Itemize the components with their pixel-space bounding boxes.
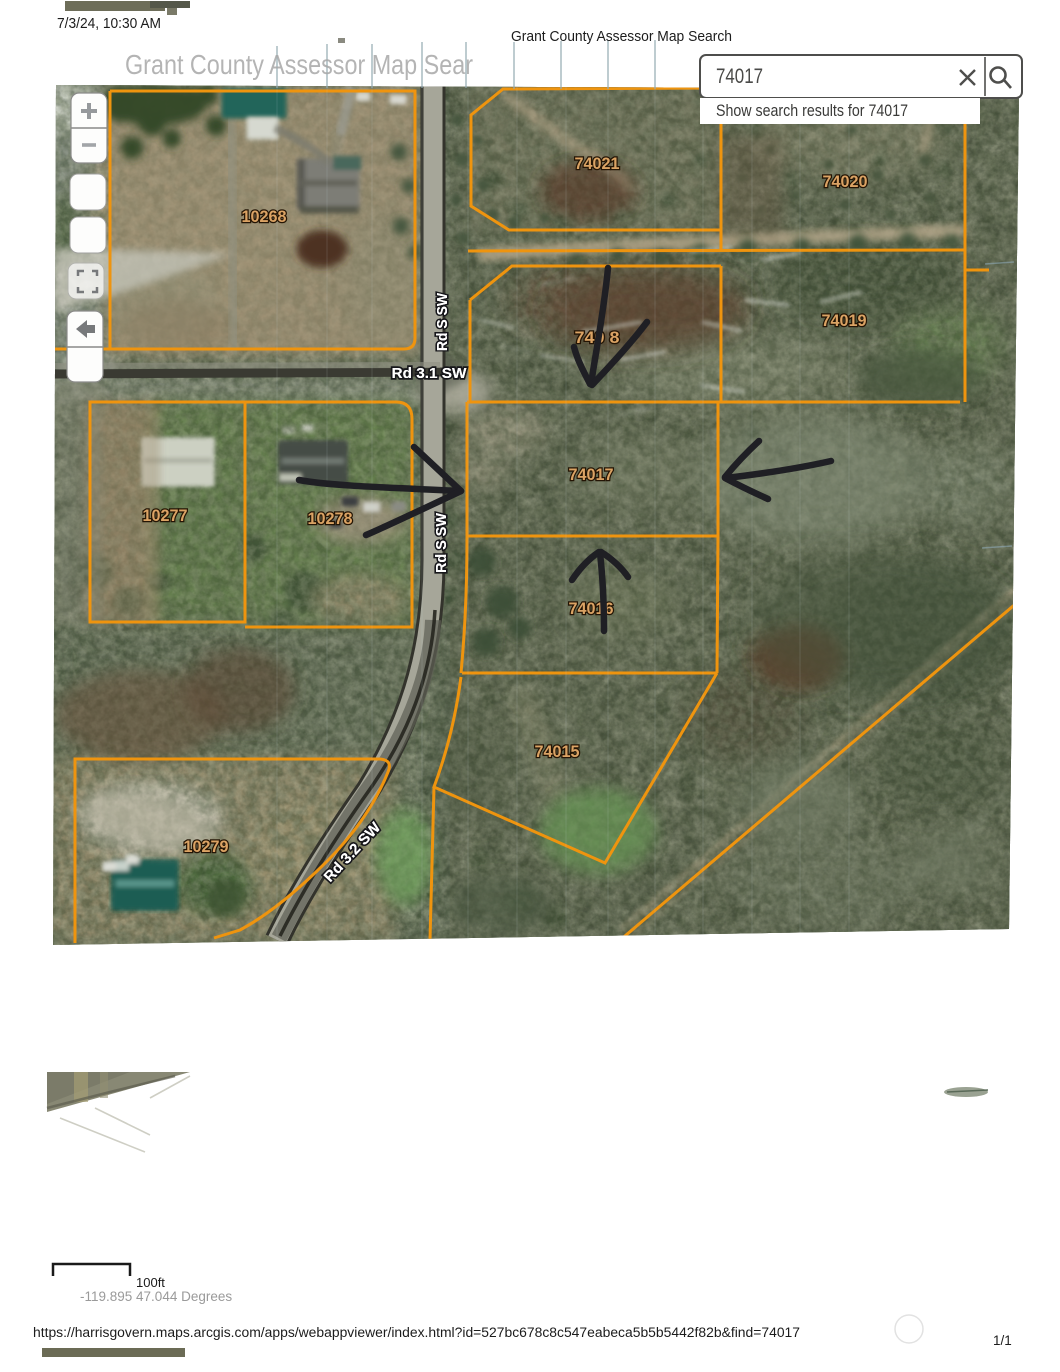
svg-text:https://harrisgovern.maps.arcg: https://harrisgovern.maps.arcgis.com/app… <box>33 1325 800 1340</box>
svg-text:74020: 74020 <box>823 172 868 191</box>
svg-text:1/1: 1/1 <box>993 1333 1012 1348</box>
svg-text:Rd 3.1 SW: Rd 3.1 SW <box>392 365 468 382</box>
svg-text:Grant County Assessor Map Sear: Grant County Assessor Map Search <box>511 28 732 45</box>
svg-text:Rd S SW: Rd S SW <box>434 292 451 351</box>
svg-text:Grant County Assessor Map Sear: Grant County Assessor Map Sear <box>125 49 473 80</box>
svg-text:10277: 10277 <box>143 506 188 525</box>
svg-text:7/3/24, 10:30 AM: 7/3/24, 10:30 AM <box>57 16 161 32</box>
svg-text:74015: 74015 <box>535 742 580 761</box>
svg-text:Rd S SW: Rd S SW <box>433 512 450 573</box>
svg-text:10278: 10278 <box>308 509 353 528</box>
svg-text:74017: 74017 <box>569 465 614 484</box>
svg-text:10268: 10268 <box>242 207 287 226</box>
svg-text:74019: 74019 <box>822 311 867 330</box>
svg-text:74021: 74021 <box>575 154 620 173</box>
svg-text:Show search results for 74017: Show search results for 74017 <box>716 101 908 120</box>
svg-text:100ft: 100ft <box>136 1275 165 1290</box>
svg-text:74017: 74017 <box>716 65 763 88</box>
svg-text:10279: 10279 <box>184 837 229 856</box>
svg-text:-119.895 47.044 Degrees: -119.895 47.044 Degrees <box>80 1289 232 1304</box>
